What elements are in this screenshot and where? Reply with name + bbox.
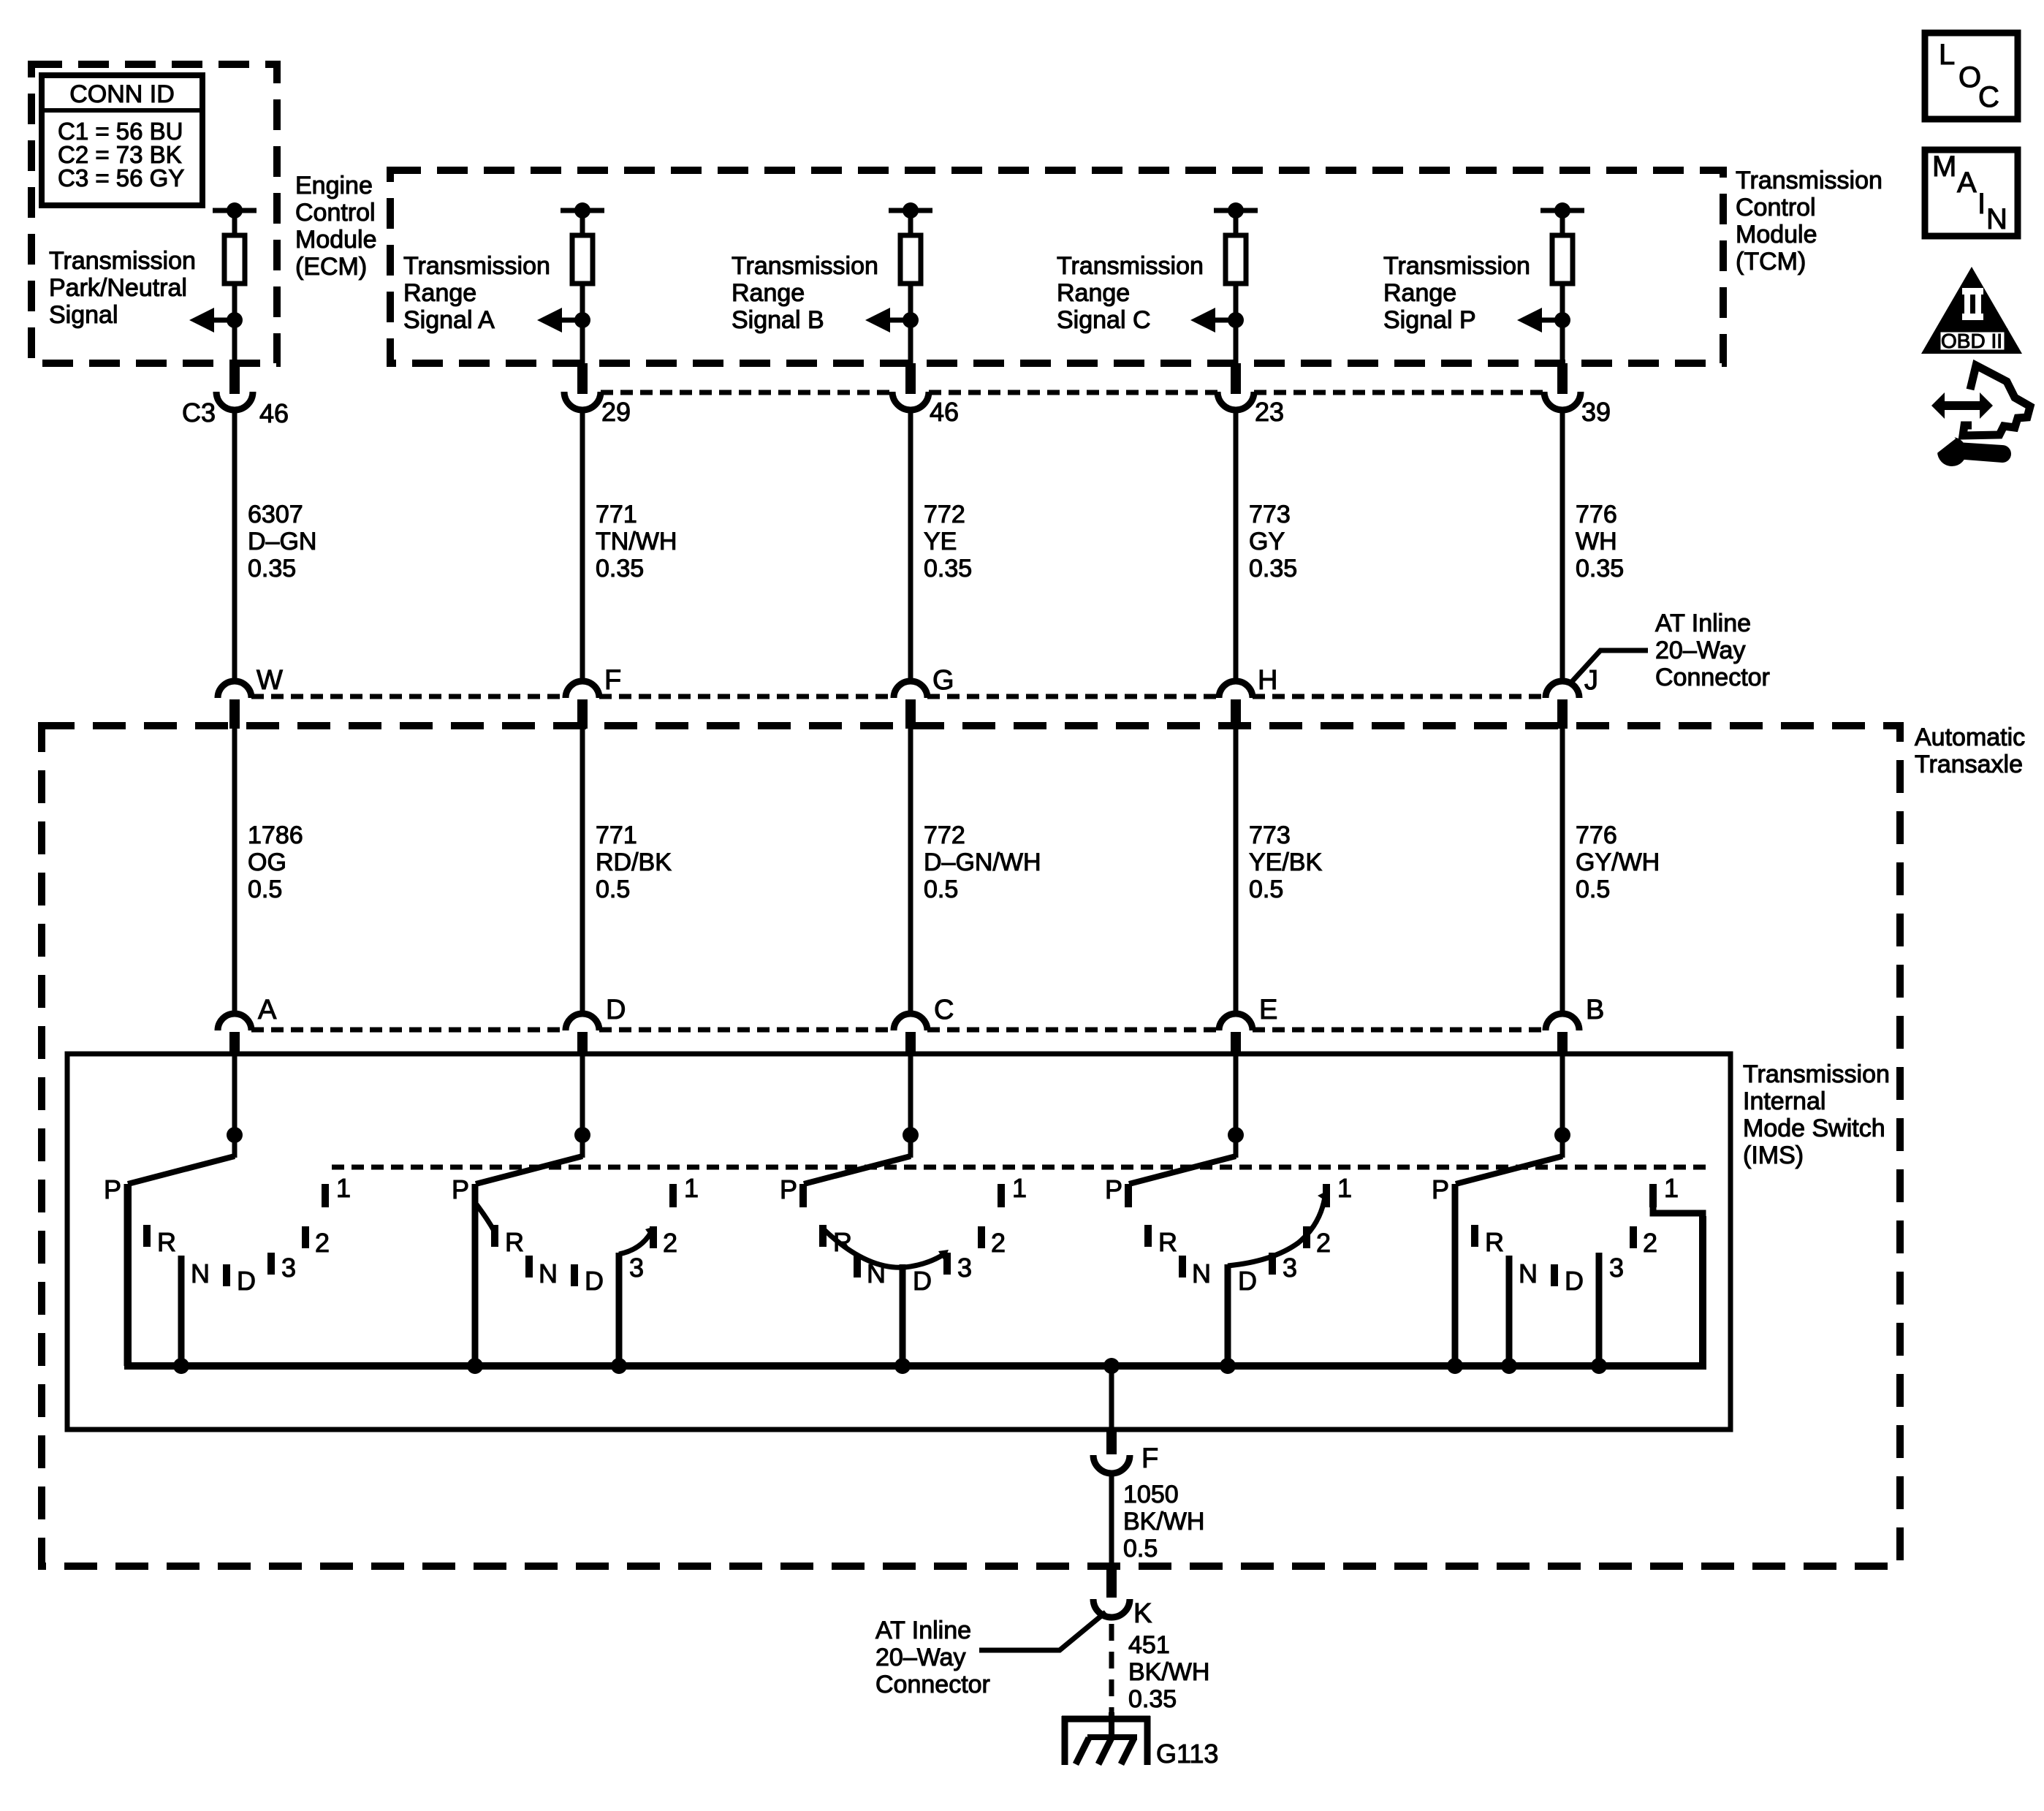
svg-text:1050: 1050 bbox=[1123, 1481, 1179, 1508]
svg-text:K: K bbox=[1133, 1598, 1152, 1629]
svg-text:C3 = 56 GY: C3 = 56 GY bbox=[58, 164, 184, 191]
svg-text:YE/BK: YE/BK bbox=[1249, 848, 1322, 876]
svg-text:0.5: 0.5 bbox=[248, 876, 282, 903]
svg-text:I: I bbox=[1977, 188, 1986, 220]
svg-text:D: D bbox=[1565, 1266, 1584, 1296]
svg-text:P: P bbox=[780, 1174, 797, 1204]
svg-text:Control: Control bbox=[295, 199, 376, 227]
svg-text:46: 46 bbox=[930, 397, 959, 427]
svg-text:0.35: 0.35 bbox=[248, 555, 296, 582]
svg-text:D: D bbox=[913, 1266, 932, 1296]
svg-text:GY: GY bbox=[1249, 528, 1285, 555]
svg-text:BK/WH: BK/WH bbox=[1123, 1508, 1204, 1535]
svg-text:OG: OG bbox=[248, 848, 286, 876]
svg-text:N: N bbox=[1192, 1258, 1211, 1288]
svg-text:Signal A: Signal A bbox=[403, 306, 495, 334]
svg-text:E: E bbox=[1259, 995, 1277, 1025]
svg-text:3: 3 bbox=[1609, 1253, 1624, 1283]
svg-text:0.35: 0.35 bbox=[596, 555, 644, 582]
svg-text:P: P bbox=[452, 1174, 469, 1204]
svg-text:N: N bbox=[191, 1258, 210, 1288]
svg-text:Signal: Signal bbox=[49, 301, 118, 329]
svg-text:3: 3 bbox=[629, 1253, 644, 1283]
svg-text:0.35: 0.35 bbox=[1128, 1685, 1177, 1713]
svg-text:3: 3 bbox=[1283, 1253, 1297, 1283]
svg-text:W: W bbox=[257, 665, 283, 696]
svg-text:P: P bbox=[1432, 1174, 1449, 1204]
svg-text:OBD II: OBD II bbox=[1941, 330, 2002, 352]
svg-text:(ECM): (ECM) bbox=[295, 253, 367, 281]
svg-text:F: F bbox=[1141, 1443, 1158, 1474]
svg-text:1: 1 bbox=[684, 1173, 699, 1203]
svg-text:Engine: Engine bbox=[295, 172, 373, 200]
svg-text:776: 776 bbox=[1576, 821, 1617, 849]
svg-text:Transmission: Transmission bbox=[1057, 252, 1204, 280]
svg-text:39: 39 bbox=[1581, 397, 1611, 427]
svg-text:Range: Range bbox=[732, 279, 805, 307]
svg-text:Transmission: Transmission bbox=[403, 252, 550, 280]
svg-text:Transmission: Transmission bbox=[1743, 1060, 1890, 1088]
svg-text:Connector: Connector bbox=[875, 1671, 990, 1698]
svg-text:N: N bbox=[1986, 203, 2007, 235]
svg-text:Control: Control bbox=[1736, 194, 1816, 221]
svg-text:1: 1 bbox=[1664, 1173, 1679, 1203]
svg-text:20–Way: 20–Way bbox=[1655, 637, 1745, 664]
svg-text:(IMS): (IMS) bbox=[1743, 1142, 1804, 1169]
svg-text:CONN ID: CONN ID bbox=[69, 80, 175, 108]
svg-text:D: D bbox=[1238, 1266, 1257, 1296]
svg-text:WH: WH bbox=[1576, 528, 1617, 555]
svg-text:G: G bbox=[932, 665, 954, 696]
svg-text:0.35: 0.35 bbox=[924, 555, 972, 582]
svg-text:0.35: 0.35 bbox=[1576, 555, 1624, 582]
svg-text:TN/WH: TN/WH bbox=[596, 528, 677, 555]
svg-text:C3: C3 bbox=[182, 398, 216, 428]
svg-text:2: 2 bbox=[1316, 1228, 1331, 1258]
svg-text:1: 1 bbox=[1012, 1173, 1027, 1203]
svg-text:R: R bbox=[1158, 1227, 1177, 1257]
svg-text:Transmission: Transmission bbox=[1383, 252, 1530, 280]
svg-text:P: P bbox=[1105, 1174, 1122, 1204]
svg-text:M: M bbox=[1932, 151, 1956, 183]
svg-text:772: 772 bbox=[924, 821, 965, 849]
svg-text:C: C bbox=[934, 995, 954, 1025]
svg-text:D–GN: D–GN bbox=[248, 528, 316, 555]
svg-text:20–Way: 20–Way bbox=[875, 1644, 965, 1671]
svg-text:R: R bbox=[1485, 1227, 1504, 1257]
svg-text:Signal P: Signal P bbox=[1383, 306, 1476, 334]
svg-text:773: 773 bbox=[1249, 821, 1291, 849]
svg-text:N: N bbox=[539, 1258, 558, 1288]
svg-text:Module: Module bbox=[295, 226, 377, 254]
svg-text:Range: Range bbox=[403, 279, 476, 307]
svg-text:F: F bbox=[604, 665, 621, 696]
svg-text:2: 2 bbox=[315, 1228, 330, 1258]
svg-text:Park/Neutral: Park/Neutral bbox=[49, 274, 187, 302]
svg-text:0.5: 0.5 bbox=[596, 876, 630, 903]
svg-text:Module: Module bbox=[1736, 221, 1817, 248]
svg-text:D: D bbox=[237, 1266, 256, 1296]
svg-text:(TCM): (TCM) bbox=[1736, 248, 1806, 276]
svg-text:D: D bbox=[585, 1266, 604, 1296]
svg-text:6307: 6307 bbox=[248, 501, 303, 528]
svg-text:Transmission: Transmission bbox=[49, 247, 196, 275]
svg-text:Transmission: Transmission bbox=[732, 252, 878, 280]
svg-text:Signal C: Signal C bbox=[1057, 306, 1151, 334]
svg-text:Internal: Internal bbox=[1743, 1087, 1825, 1115]
svg-text:AT Inline: AT Inline bbox=[1655, 610, 1751, 637]
svg-text:771: 771 bbox=[596, 501, 637, 528]
svg-text:46: 46 bbox=[259, 398, 289, 428]
svg-text:23: 23 bbox=[1255, 397, 1284, 427]
svg-text:R: R bbox=[157, 1227, 176, 1257]
svg-text:RD/BK: RD/BK bbox=[596, 848, 672, 876]
svg-text:3: 3 bbox=[281, 1253, 296, 1283]
svg-text:B: B bbox=[1586, 995, 1604, 1025]
svg-text:Range: Range bbox=[1383, 279, 1456, 307]
svg-text:AT Inline: AT Inline bbox=[875, 1617, 971, 1644]
svg-text:Automatic: Automatic bbox=[1915, 724, 2025, 751]
svg-text:R: R bbox=[505, 1227, 524, 1257]
svg-text:0.5: 0.5 bbox=[924, 876, 958, 903]
svg-text:Mode Switch: Mode Switch bbox=[1743, 1115, 1885, 1142]
svg-text:1786: 1786 bbox=[248, 821, 303, 849]
svg-text:0.5: 0.5 bbox=[1249, 876, 1283, 903]
svg-text:Range: Range bbox=[1057, 279, 1130, 307]
svg-text:C: C bbox=[1978, 81, 1999, 113]
svg-text:GY/WH: GY/WH bbox=[1576, 848, 1660, 876]
svg-text:2: 2 bbox=[1643, 1228, 1657, 1258]
svg-text:Connector: Connector bbox=[1655, 664, 1770, 691]
svg-text:L: L bbox=[1939, 39, 1955, 71]
svg-text:2: 2 bbox=[991, 1228, 1006, 1258]
svg-text:0.5: 0.5 bbox=[1123, 1535, 1158, 1563]
svg-text:1: 1 bbox=[1337, 1173, 1352, 1203]
svg-text:2: 2 bbox=[663, 1228, 677, 1258]
svg-text:772: 772 bbox=[924, 501, 965, 528]
svg-text:A: A bbox=[1957, 167, 1977, 199]
svg-text:1: 1 bbox=[336, 1173, 351, 1203]
svg-text:G113: G113 bbox=[1156, 1739, 1218, 1769]
svg-text:Signal B: Signal B bbox=[732, 306, 824, 334]
svg-text:773: 773 bbox=[1249, 501, 1291, 528]
svg-text:3: 3 bbox=[957, 1253, 972, 1283]
svg-text:D: D bbox=[606, 995, 626, 1025]
svg-text:N: N bbox=[1519, 1258, 1538, 1288]
svg-text:771: 771 bbox=[596, 821, 637, 849]
svg-text:29: 29 bbox=[601, 397, 631, 427]
svg-text:D–GN/WH: D–GN/WH bbox=[924, 848, 1041, 876]
svg-text:A: A bbox=[258, 995, 277, 1025]
svg-text:Transmission: Transmission bbox=[1736, 167, 1882, 194]
svg-text:BK/WH: BK/WH bbox=[1128, 1658, 1209, 1686]
svg-text:P: P bbox=[104, 1174, 121, 1204]
svg-text:Transaxle: Transaxle bbox=[1915, 751, 2023, 778]
svg-text:H: H bbox=[1258, 665, 1277, 696]
svg-text:0.5: 0.5 bbox=[1576, 876, 1610, 903]
svg-text:776: 776 bbox=[1576, 501, 1617, 528]
svg-text:451: 451 bbox=[1128, 1631, 1170, 1659]
svg-text:0.35: 0.35 bbox=[1249, 555, 1297, 582]
svg-text:J: J bbox=[1584, 665, 1598, 696]
svg-text:YE: YE bbox=[924, 528, 957, 555]
